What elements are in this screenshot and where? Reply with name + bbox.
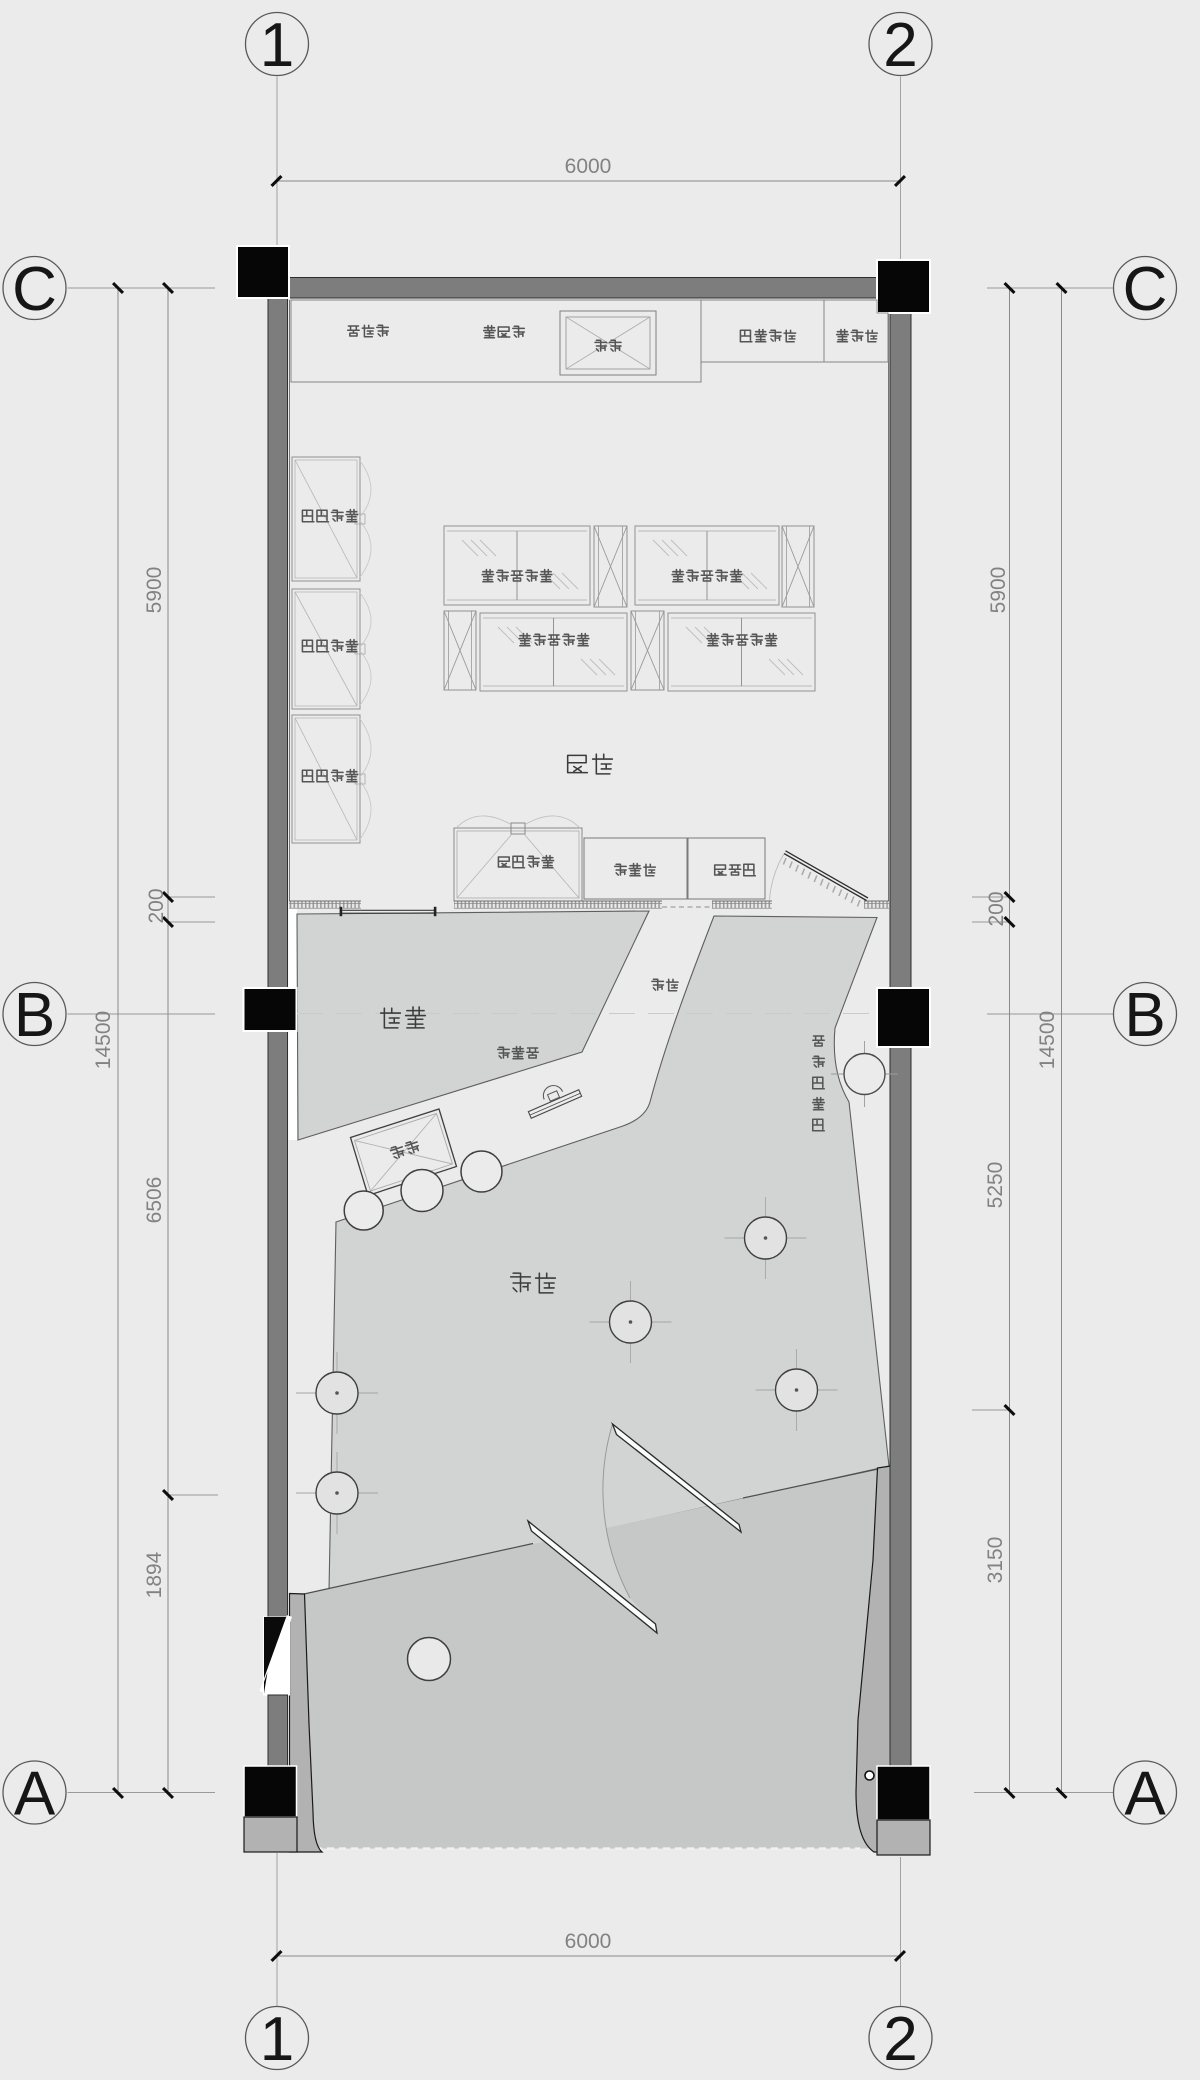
svg-text:200: 200: [985, 891, 1008, 926]
svg-text:6000: 6000: [565, 155, 612, 178]
svg-text:6506: 6506: [143, 1177, 166, 1224]
svg-text:6000: 6000: [565, 1930, 612, 1953]
svg-text:1894: 1894: [143, 1551, 166, 1598]
svg-text:C: C: [1123, 255, 1168, 324]
svg-text:5900: 5900: [987, 567, 1010, 614]
svg-text:3150: 3150: [984, 1537, 1007, 1584]
svg-text:1: 1: [260, 11, 294, 80]
svg-text:A: A: [14, 1760, 56, 1829]
svg-text:C: C: [12, 255, 57, 324]
svg-text:B: B: [1124, 981, 1165, 1050]
svg-text:1: 1: [260, 2005, 294, 2074]
svg-text:B: B: [14, 981, 55, 1050]
svg-text:200: 200: [145, 888, 168, 923]
svg-text:2: 2: [883, 11, 917, 80]
svg-text:5900: 5900: [143, 567, 166, 614]
svg-text:14500: 14500: [1036, 1011, 1059, 1069]
svg-text:5250: 5250: [984, 1162, 1007, 1209]
svg-text:2: 2: [883, 2005, 917, 2074]
svg-text:14500: 14500: [92, 1011, 115, 1069]
svg-text:A: A: [1124, 1760, 1166, 1829]
